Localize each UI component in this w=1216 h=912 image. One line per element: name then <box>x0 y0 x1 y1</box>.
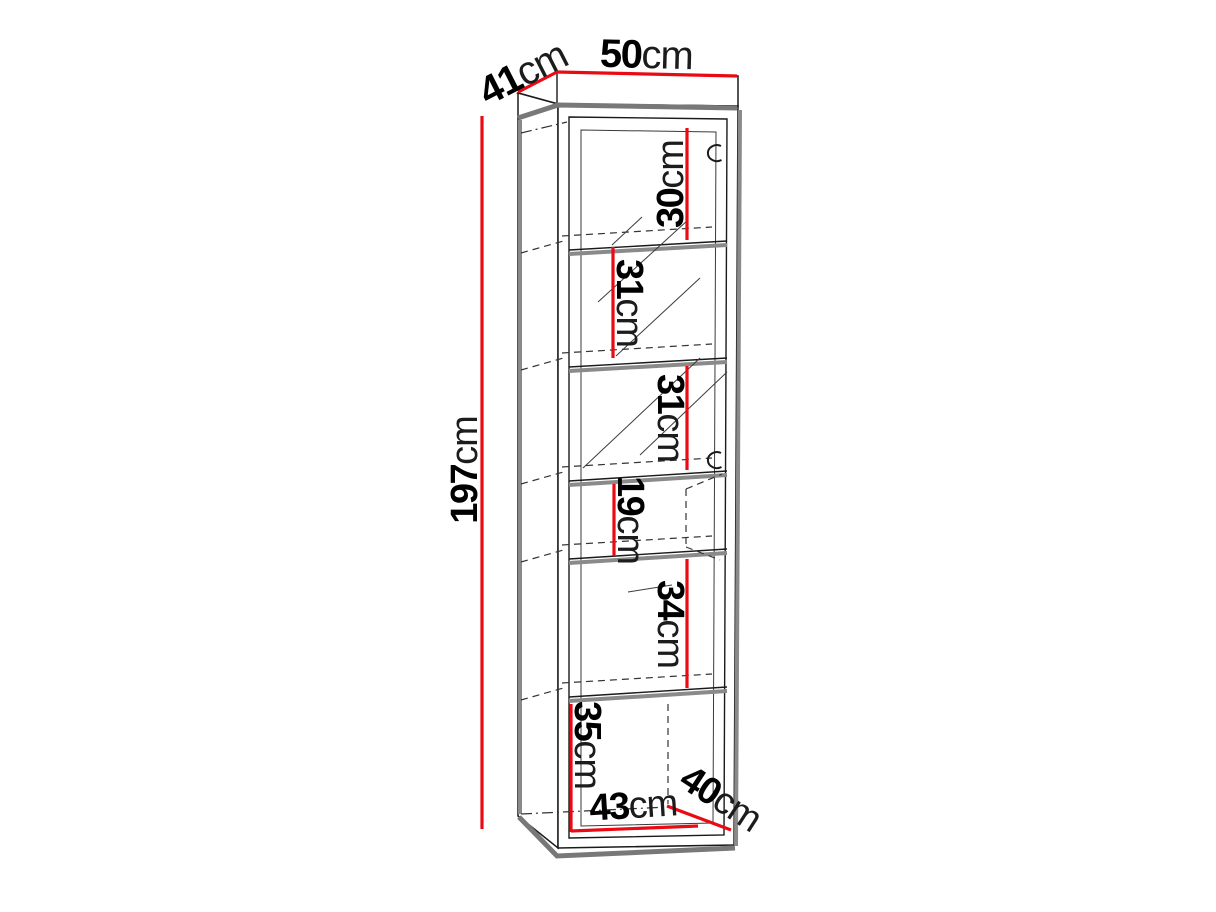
dimension-label-section-3: 31cm <box>649 374 691 462</box>
dimension-label-interior-width: 43cm <box>588 782 678 829</box>
dimension-label-section-4: 19cm <box>609 476 651 564</box>
cabinet-left-side-panel <box>518 93 558 848</box>
dimension-label-section-6: 35cm <box>566 701 608 789</box>
diagram-canvas: 41cm 50cm 197cm 30cm 31cm 31cm 19cm 34cm… <box>0 0 1216 912</box>
dimension-label-section-1: 30cm <box>650 140 692 228</box>
cabinet-dimension-diagram: 41cm 50cm 197cm 30cm 31cm 31cm 19cm 34cm… <box>0 0 1216 912</box>
dimension-label-section-5: 34cm <box>649 580 691 668</box>
dimension-label-height: 197cm <box>444 416 486 524</box>
dimension-label-width: 50cm <box>599 32 693 78</box>
dimension-label-section-2: 31cm <box>608 259 650 347</box>
